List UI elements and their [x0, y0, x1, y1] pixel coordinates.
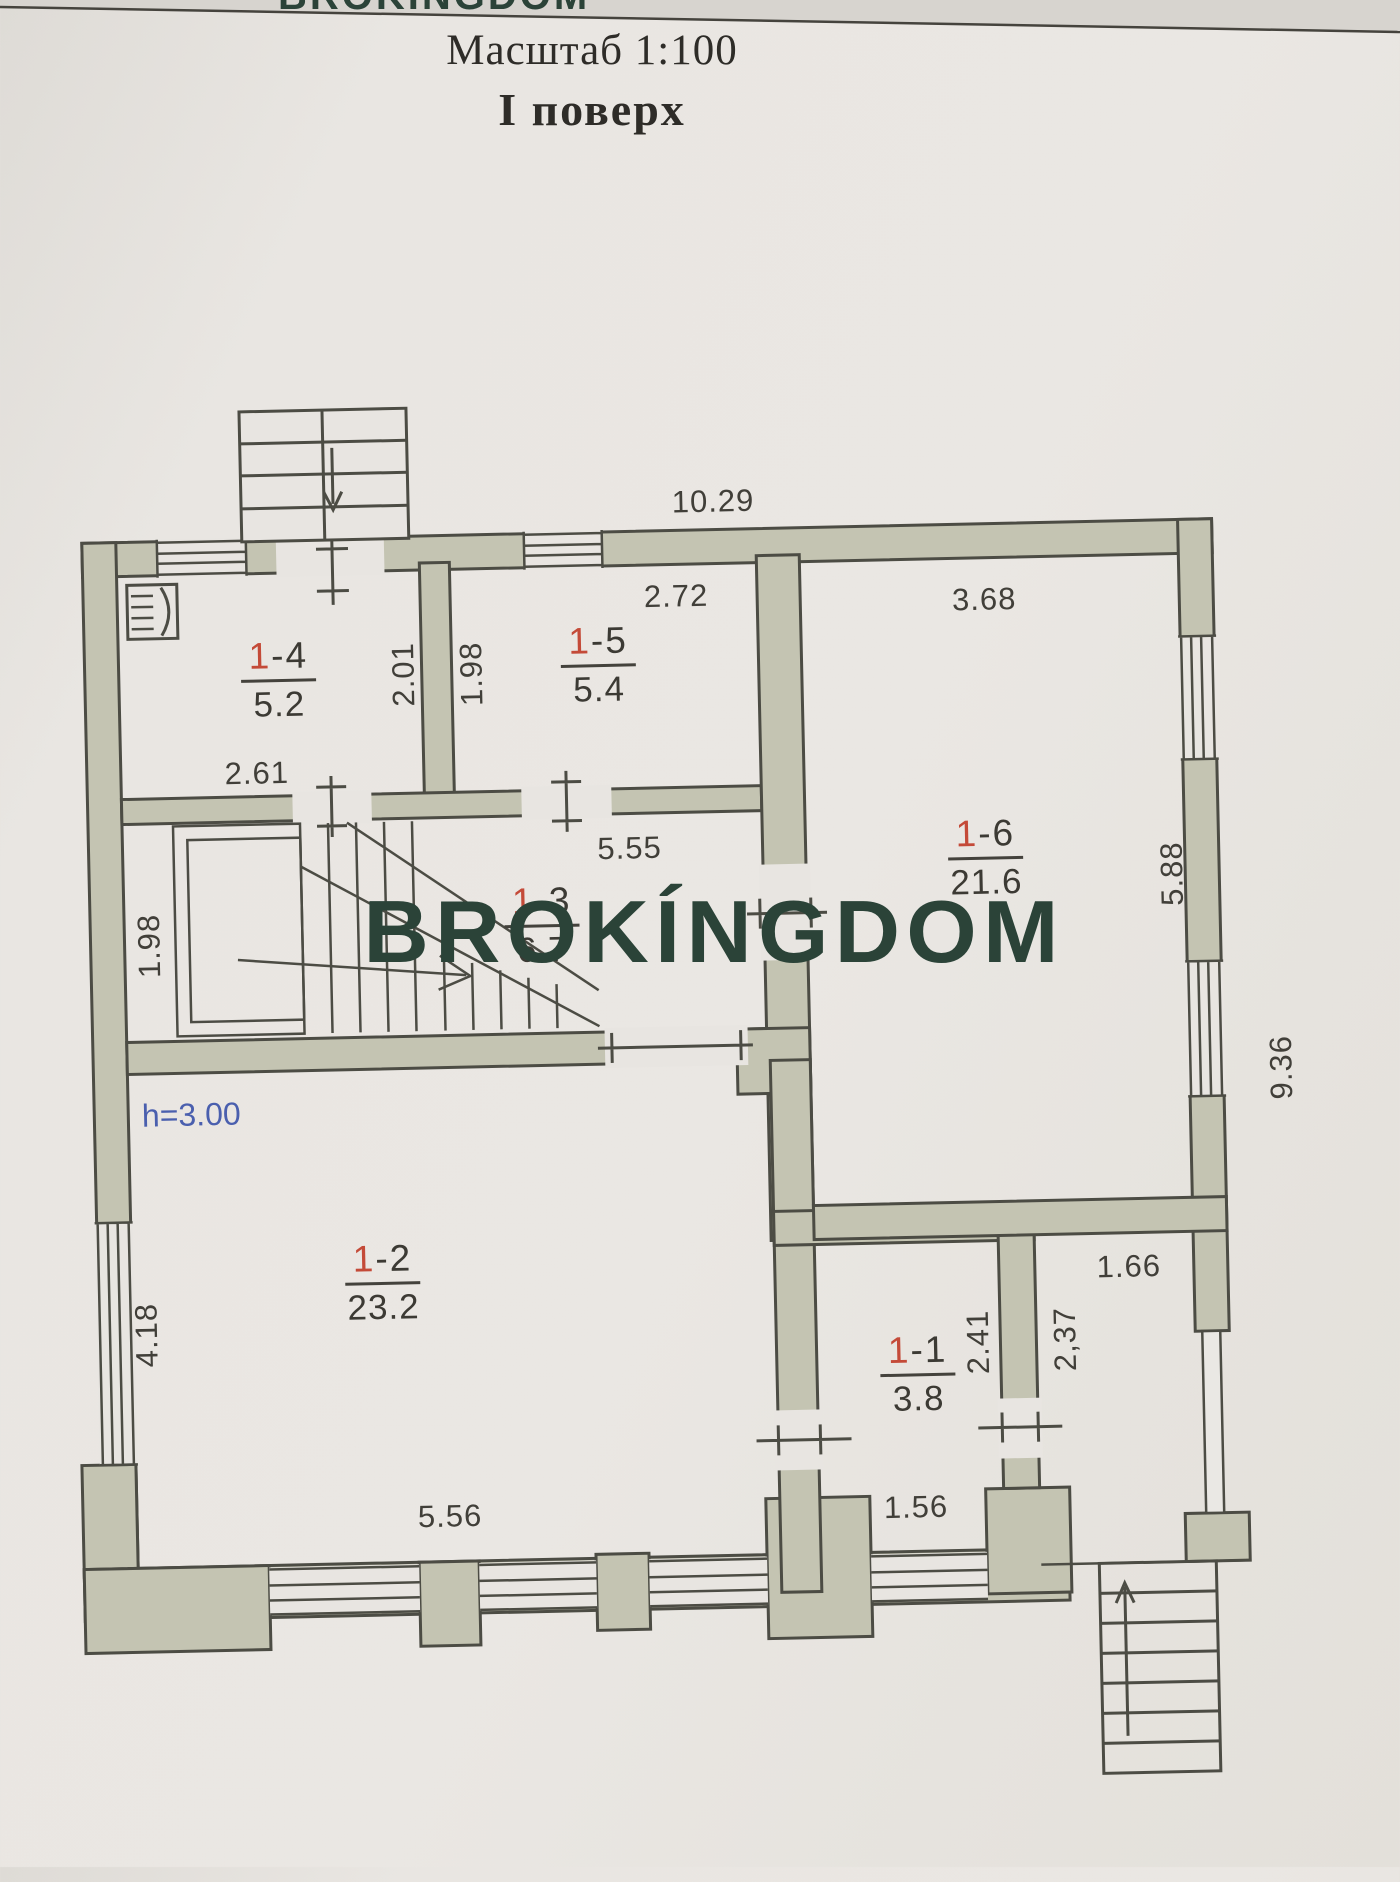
- porch-thin-wall: [1202, 1331, 1224, 1513]
- window-bottom-2: [479, 1560, 597, 1611]
- window-bottom-3: [649, 1557, 768, 1608]
- window-bottom-1: [269, 1564, 420, 1615]
- wall-room4-room5: [419, 562, 454, 796]
- stairs-top: [239, 408, 409, 542]
- pier-bottom-left-corner: [84, 1566, 271, 1654]
- wall-left-lower: [82, 1464, 138, 1577]
- window-bottom-4: [871, 1552, 988, 1603]
- stairs-bottom: [1099, 1561, 1221, 1774]
- pier-porch-left: [986, 1487, 1072, 1594]
- pier-bottom-1: [419, 1561, 481, 1646]
- interior-walls: [116, 546, 1234, 1607]
- window-left: [95, 1222, 138, 1465]
- door-openings: [276, 519, 1043, 1481]
- watermark: BROKÍNGDOM: [363, 881, 1064, 983]
- stairs-top-arrow-shaft: [332, 448, 333, 504]
- wall-hall-top: [121, 786, 761, 825]
- window-top-2: [524, 530, 603, 570]
- window-right-2: [1185, 961, 1226, 1097]
- window-right-1: [1178, 636, 1219, 760]
- wall-room6-bottom: [813, 1197, 1227, 1240]
- radiator-icon: [127, 584, 178, 639]
- scanned-floorplan-page: BROKÍNGDOM Масштаб 1:100 І поверх: [0, 0, 1400, 1867]
- exterior-walls: [62, 518, 1252, 1653]
- stairs-landing: [173, 824, 305, 1037]
- pier-bottom-2: [596, 1553, 651, 1630]
- pier-porch-right: [1185, 1512, 1250, 1561]
- window-top-1: [157, 538, 247, 578]
- stairs-landing-inner: [187, 838, 304, 1022]
